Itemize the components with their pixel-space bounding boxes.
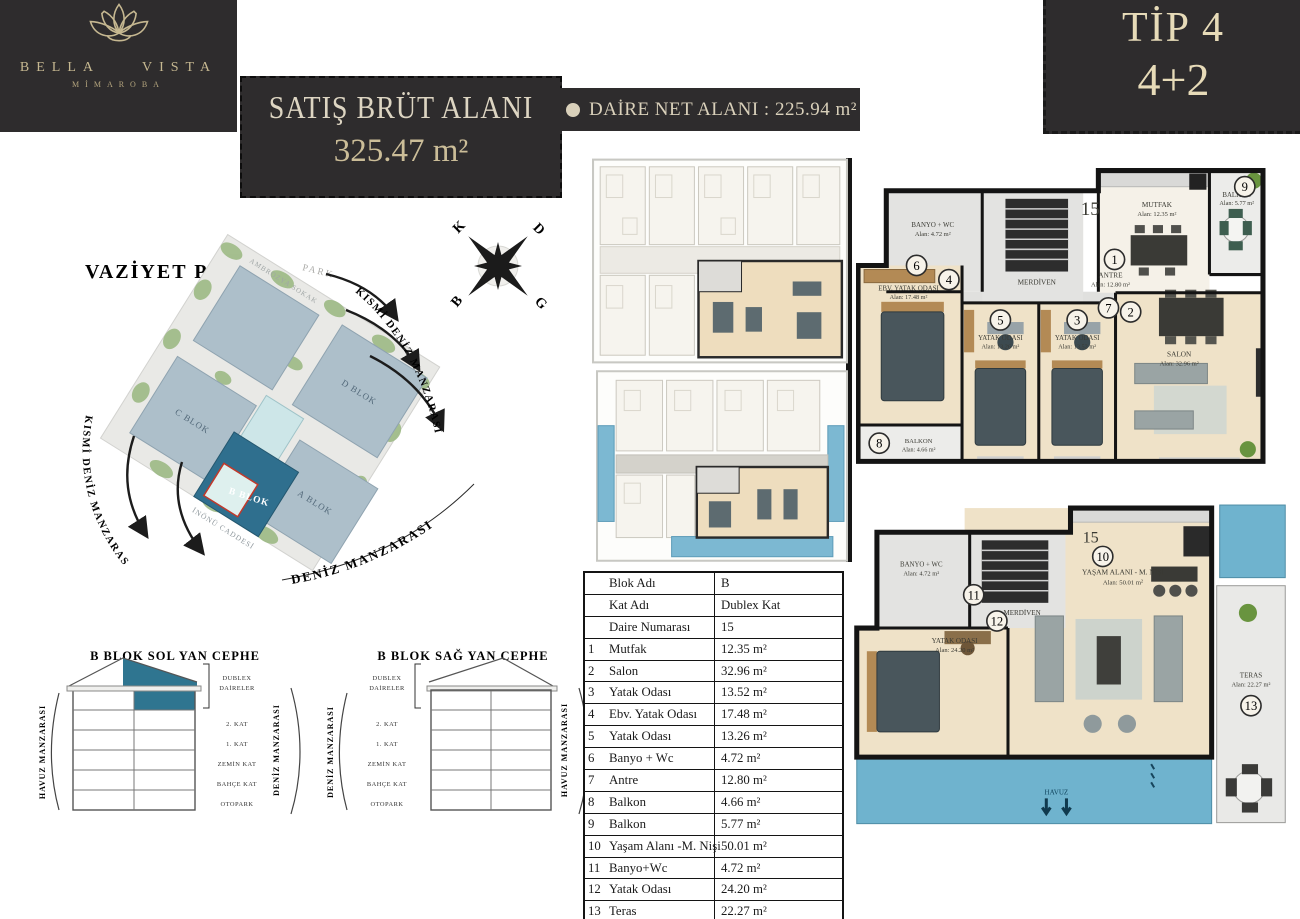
room-yatak12-name: YATAK ODASI [932, 637, 978, 645]
duplex-label-1: DUBLEX [223, 675, 252, 682]
room-yatak5-area: Alan: 13.26 m² [982, 343, 1020, 350]
net-area-label: DAİRE NET ALANI : 225.94 m² [589, 99, 857, 121]
net-area-bar: DAİRE NET ALANI : 225.94 m² [558, 88, 860, 131]
row-label: Teras [609, 904, 637, 919]
brochure-page: BELLA VISTA MİMAROBA SATIŞ BRÜT ALANI 32… [0, 0, 1300, 919]
room-antre-name: ANTRE [1098, 272, 1123, 280]
elevation-left-side-left: HAVUZ MANZARASI [38, 705, 47, 799]
row-label: Yatak Odası [609, 729, 671, 744]
keyplan-upper [592, 158, 848, 364]
unit-number: 15 [1083, 529, 1099, 546]
gross-area-box: SATIŞ BRÜT ALANI 325.47 m² [240, 76, 562, 198]
floor-plan-upper: 15 BANYO + WC Alan: 4.72 m² MERDİVEN ANT… [856, 168, 1266, 472]
table-row: 8Balkon 4.66 m² [585, 792, 842, 814]
table-row: 13Teras 22.27 m² [585, 901, 842, 919]
room-balkon8-area: Alan: 4.66 m² [902, 446, 936, 453]
table-row: Blok Adı B [585, 573, 842, 595]
room-yatak12-area: Alan: 24.20 m² [935, 647, 974, 654]
table-row: 3Yatak Odası 13.52 m² [585, 682, 842, 704]
type-rooms: 4+2 [1046, 52, 1300, 108]
floor-label: 2. KAT [376, 721, 398, 728]
row-label: Banyo + Wc [609, 751, 674, 766]
duplex-label-2: DAİRELER [369, 685, 405, 692]
row-value: 4.72 m² [715, 861, 842, 876]
water-feature [1220, 505, 1286, 578]
row-value: 12.80 m² [715, 773, 842, 788]
duplex-label-2: DAİRELER [219, 685, 255, 692]
table-row: 2Salon 32.96 m² [585, 661, 842, 683]
svg-text:3: 3 [1074, 314, 1080, 328]
row-label: Blok Adı [609, 576, 656, 591]
room-banyo-area: Alan: 4.72 m² [915, 231, 951, 238]
gross-area-label: SATIŞ BRÜT ALANI [242, 91, 560, 127]
row-label: Banyo+Wc [609, 861, 667, 876]
row-value: 24.20 m² [715, 882, 842, 897]
room-ebv-name: EBV. YATAK ODASI [878, 286, 939, 293]
svg-text:9: 9 [1242, 180, 1248, 194]
svg-text:11: 11 [968, 588, 980, 602]
room-balkon8-name: BALKON [905, 438, 933, 445]
row-value: 32.96 m² [715, 664, 842, 679]
floor-plan-lower: 15 BANYO + WC Alan: 4.72 m² MERDİVEN YAŞ… [848, 500, 1293, 868]
svg-text:4: 4 [946, 273, 953, 287]
room-salon-name: SALON [1167, 350, 1192, 358]
floor-label: 1. KAT [226, 741, 248, 748]
row-value: 17.48 m² [715, 707, 842, 722]
area-table: Blok Adı B Kat Adı Dublex Kat Daire Numa… [583, 571, 844, 919]
row-value: Dublex Kat [715, 598, 842, 613]
row-value: 15 [715, 620, 842, 635]
floor-label: OTOPARK [371, 801, 404, 808]
type-title: TİP 4 [1046, 0, 1300, 56]
site-plan: VAZİYET PLANI D BLOK C BLO [30, 230, 500, 590]
room-yasam-name: YAŞAM ALANI - M. NİŞİ [1082, 568, 1164, 577]
row-value: 12.35 m² [715, 642, 842, 657]
park-label: PARK [301, 263, 335, 281]
room-merdiven-name: MERDİVEN [1004, 609, 1041, 617]
compass-n: K [450, 218, 468, 236]
floor-label: 1. KAT [376, 741, 398, 748]
row-value: 22.27 m² [715, 904, 842, 919]
elevation-right-title: B BLOK SAĞ YAN CEPHE [377, 649, 548, 663]
elevation-right-side-right: HAVUZ MANZARASI [560, 703, 569, 797]
table-row: Kat Adı Dublex Kat [585, 595, 842, 617]
room-teras-name: TERAS [1240, 671, 1262, 679]
floor-label: 2. KAT [226, 721, 248, 728]
table-row: Daire Numarası 15 [585, 617, 842, 639]
table-row: 4Ebv. Yatak Odası 17.48 m² [585, 704, 842, 726]
room-banyo11-name: BANYO + WC [900, 562, 943, 569]
svg-text:13: 13 [1245, 699, 1258, 713]
room-yasam-area: Alan: 50.01 m² [1103, 580, 1143, 587]
elevation-right: B BLOK SAĞ YAN CEPHE DENİZ MANZARASI HAV… [313, 638, 598, 823]
pool-label: HAVUZ [1045, 788, 1069, 796]
compass-w: B [449, 293, 466, 310]
keyplan-lower [596, 370, 848, 562]
room-antre-area: Alan: 12.80 m² [1091, 282, 1130, 289]
svg-text:8: 8 [876, 437, 882, 451]
table-row: 9Balkon 5.77 m² [585, 814, 842, 836]
elevation-left-title: B BLOK SOL YAN CEPHE [90, 649, 260, 663]
svg-text:2: 2 [1128, 305, 1134, 319]
row-label: Balkon [609, 817, 646, 832]
table-row: 6Banyo + Wc 4.72 m² [585, 748, 842, 770]
floor-label: BAHÇE KAT [367, 781, 407, 788]
table-row: 5Yatak Odası 13.26 m² [585, 726, 842, 748]
room-salon-area: Alan: 32.96 m² [1160, 360, 1199, 367]
row-label: Antre [609, 773, 638, 788]
room-mutfak-area: Alan: 12.35 m² [1137, 211, 1176, 218]
row-label: Balkon [609, 795, 646, 810]
unit-number: 15 [1081, 199, 1100, 220]
row-value: 4.66 m² [715, 795, 842, 810]
room-yatak5-name: YATAK ODASI [978, 335, 1023, 342]
room-banyo11-area: Alan: 4.72 m² [903, 571, 939, 578]
room-yatak3-area: Alan: 13.52 m² [1058, 343, 1096, 350]
svg-text:10: 10 [1096, 550, 1109, 564]
duplex-label-1: DUBLEX [373, 675, 402, 682]
table-row: 11Banyo+Wc 4.72 m² [585, 858, 842, 880]
row-label: Yatak Odası [609, 882, 671, 897]
elevation-left: B BLOK SOL YAN CEPHE HAVUZ MANZARASI DEN… [25, 638, 310, 823]
brand-subtitle: MİMAROBA [72, 80, 165, 89]
floor-label: ZEMİN KAT [218, 761, 257, 768]
svg-text:7: 7 [1105, 301, 1111, 315]
type-box: TİP 4 4+2 [1043, 0, 1300, 134]
floor-label: OTOPARK [221, 801, 254, 808]
table-row: 12Yatak Odası 24.20 m² [585, 879, 842, 901]
table-row: 7Antre 12.80 m² [585, 770, 842, 792]
table-row: 1Mutfak 12.35 m² [585, 639, 842, 661]
svg-text:1: 1 [1111, 253, 1117, 267]
row-label: Yatak Odası [609, 685, 671, 700]
room-mutfak-name: MUTFAK [1142, 201, 1173, 209]
room-ebv-area: Alan: 17.48 m² [890, 294, 928, 301]
compass-e: D [530, 221, 548, 239]
svg-text:5: 5 [997, 314, 1003, 328]
room-banyo-name: BANYO + WC [911, 222, 954, 229]
floor-label: ZEMİN KAT [368, 761, 407, 768]
elevation-left-side-right: DENİZ MANZARASI [271, 704, 281, 796]
pool [857, 757, 1212, 824]
compass-rose: K D B G [443, 208, 553, 318]
row-value: 13.52 m² [715, 685, 842, 700]
svg-text:6: 6 [913, 259, 919, 273]
room-balkon9-area: Alan: 5.77 m² [1219, 200, 1254, 207]
brand-logo-block: BELLA VISTA MİMAROBA [0, 0, 237, 132]
row-value: 5.77 m² [715, 817, 842, 832]
room-merdiven-name: MERDİVEN [1018, 278, 1057, 287]
row-value: 13.26 m² [715, 729, 842, 744]
row-label: Ebv. Yatak Odası [609, 707, 697, 722]
row-value: 4.72 m² [715, 751, 842, 766]
room-yatak3-name: YATAK ODASI [1055, 335, 1100, 342]
svg-text:12: 12 [991, 615, 1004, 629]
row-label: Salon [609, 664, 638, 679]
row-label: Daire Numarası [609, 620, 690, 635]
row-label: Kat Adı [609, 598, 649, 613]
floor-label: BAHÇE KAT [217, 781, 257, 788]
bullet-icon [566, 103, 580, 117]
elevation-right-side-left: DENİZ MANZARASI [325, 706, 335, 798]
table-row: 10Yaşam Alanı -M. Nişi 50.01 m² [585, 836, 842, 858]
gross-area-value: 325.47 m² [242, 133, 560, 170]
lotus-icon [87, 0, 151, 50]
row-value: 50.01 m² [715, 839, 842, 854]
room-teras-area: Alan: 22.27 m² [1231, 682, 1270, 689]
compass-s: G [531, 294, 549, 312]
row-value: B [715, 576, 842, 591]
row-label: Mutfak [609, 642, 647, 657]
row-label: Yaşam Alanı -M. Nişi [609, 839, 721, 854]
